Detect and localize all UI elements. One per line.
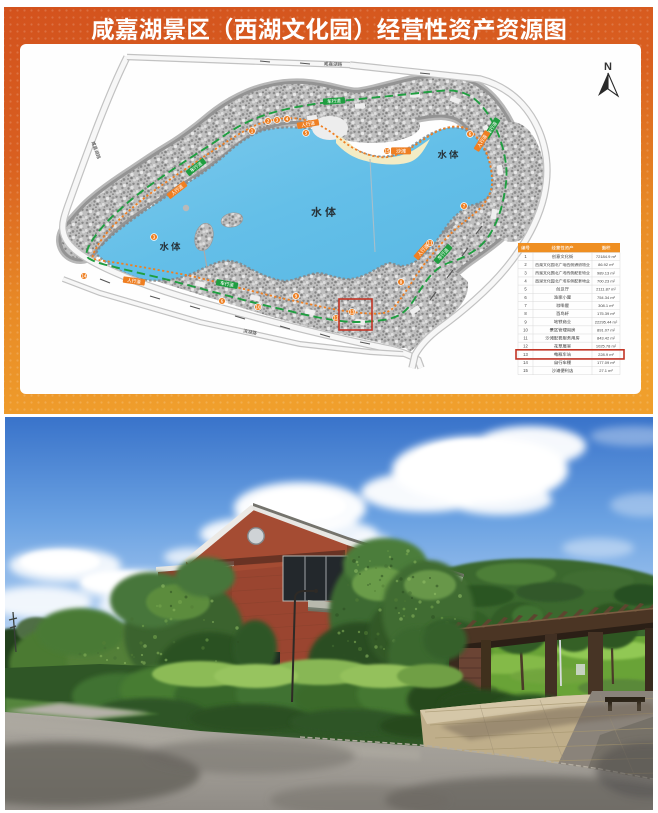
svg-text:700.23 m²: 700.23 m² (597, 279, 616, 284)
svg-text:177.09 m²: 177.09 m² (597, 360, 616, 365)
svg-text:27.1 m²: 27.1 m² (599, 368, 613, 373)
svg-text:754.34 m²: 754.34 m² (597, 295, 616, 300)
svg-text:10: 10 (523, 327, 528, 332)
svg-text:12: 12 (523, 344, 528, 349)
svg-text:843.42 m²: 843.42 m² (597, 336, 616, 341)
svg-text:22295.44 m²: 22295.44 m² (595, 319, 618, 324)
svg-text:989.13 m²: 989.13 m² (597, 270, 616, 275)
svg-text:86.92 m²: 86.92 m² (598, 262, 614, 267)
svg-text:15: 15 (523, 368, 528, 373)
svg-text:1025.78 m²: 1025.78 m² (596, 344, 617, 349)
svg-text:13: 13 (523, 352, 528, 357)
svg-text:308.1 m²: 308.1 m² (598, 303, 614, 308)
svg-text:14: 14 (523, 360, 528, 365)
svg-text:11: 11 (523, 336, 528, 341)
svg-text:175.39 m²: 175.39 m² (597, 311, 616, 316)
svg-text:N: N (604, 61, 612, 73)
svg-text:72184.9 m²: 72184.9 m² (596, 254, 617, 259)
svg-text:2111.87 m²: 2111.87 m² (596, 287, 616, 292)
svg-text:228.9 m²: 228.9 m² (598, 352, 614, 357)
svg-text:891.07 m²: 891.07 m² (597, 327, 616, 332)
